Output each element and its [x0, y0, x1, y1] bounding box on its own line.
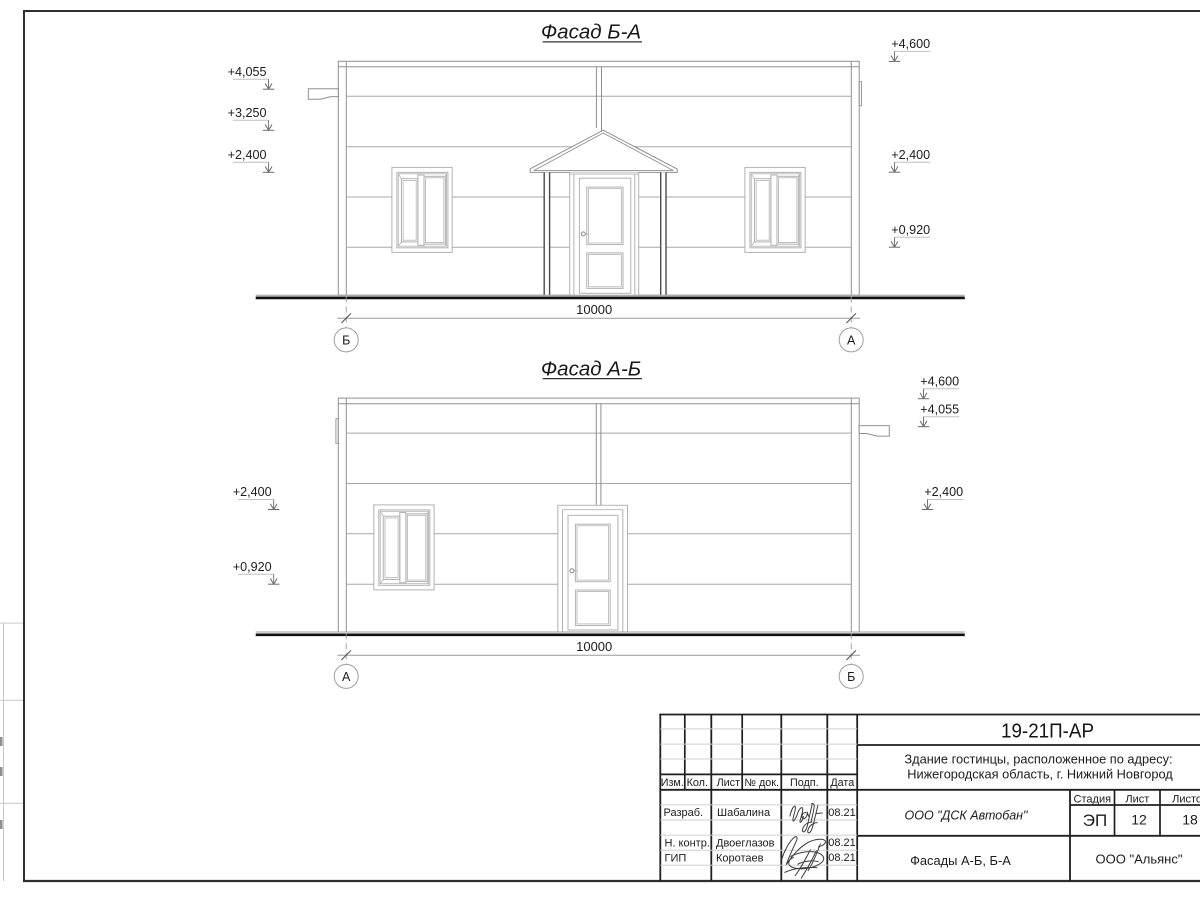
svg-text:+3,250: +3,250	[228, 106, 267, 120]
svg-text:№ док.: № док.	[744, 777, 779, 789]
svg-text:А: А	[342, 670, 351, 684]
svg-text:+0,920: +0,920	[233, 560, 272, 574]
svg-text:Фасад А-Б: Фасад А-Б	[541, 357, 641, 380]
svg-text:18: 18	[1182, 812, 1198, 828]
svg-text:Изм.: Изм.	[661, 777, 684, 789]
svg-text:Дата: Дата	[830, 777, 854, 789]
svg-text:Фасады А-Б, Б-А: Фасады А-Б, Б-А	[910, 853, 1011, 868]
svg-text:ЭП: ЭП	[1083, 811, 1107, 830]
svg-text:Подп.: Подп.	[790, 777, 819, 789]
svg-text:ООО "ДСК Автобан": ООО "ДСК Автобан"	[905, 809, 1029, 823]
svg-text:Б: Б	[847, 670, 855, 684]
svg-text:+2,400: +2,400	[228, 148, 267, 162]
svg-text:Нижегородская область, г. Нижн: Нижегородская область, г. Нижний Новгоро…	[907, 766, 1173, 781]
svg-text:12: 12	[1131, 812, 1147, 828]
svg-text:Фасад Б-А: Фасад Б-А	[541, 21, 641, 44]
svg-text:А: А	[847, 333, 856, 347]
svg-text:ООО "Альянс": ООО "Альянс"	[1096, 852, 1183, 867]
svg-text:Лист: Лист	[1125, 793, 1149, 805]
svg-text:+4,055: +4,055	[920, 402, 959, 416]
svg-text:10000: 10000	[576, 302, 612, 317]
svg-text:Н. контр.: Н. контр.	[665, 837, 710, 849]
svg-text:Стадия: Стадия	[1074, 793, 1112, 805]
svg-text:+4,600: +4,600	[891, 37, 930, 51]
svg-text:ГИП: ГИП	[665, 853, 687, 865]
svg-text:Коротаев: Коротаев	[716, 853, 764, 865]
svg-text:Лист: Лист	[717, 777, 741, 789]
svg-text:+2,400: +2,400	[891, 148, 930, 162]
svg-text:Разраб.: Разраб.	[664, 807, 704, 819]
svg-text:Шабалина: Шабалина	[717, 807, 771, 819]
svg-text:Здание гостинцы, расположенное: Здание гостинцы, расположенное по адресу…	[904, 752, 1172, 767]
svg-text:Кол.: Кол.	[687, 777, 708, 789]
svg-text:Б: Б	[342, 333, 350, 347]
svg-text:08.21: 08.21	[828, 852, 856, 864]
svg-text:+0,920: +0,920	[891, 223, 930, 237]
svg-text:10000: 10000	[576, 639, 612, 654]
svg-text:+2,400: +2,400	[233, 485, 272, 499]
svg-text:+4,055: +4,055	[228, 65, 267, 79]
svg-text:Двоеглазов: Двоеглазов	[716, 837, 775, 849]
svg-text:Листов: Листов	[1172, 793, 1200, 805]
svg-text:+2,400: +2,400	[924, 485, 963, 499]
svg-text:08.21: 08.21	[828, 837, 856, 849]
svg-text:08.21: 08.21	[828, 807, 856, 819]
svg-text:+4,600: +4,600	[920, 374, 959, 388]
svg-text:19-21П-АР: 19-21П-АР	[1001, 720, 1094, 743]
